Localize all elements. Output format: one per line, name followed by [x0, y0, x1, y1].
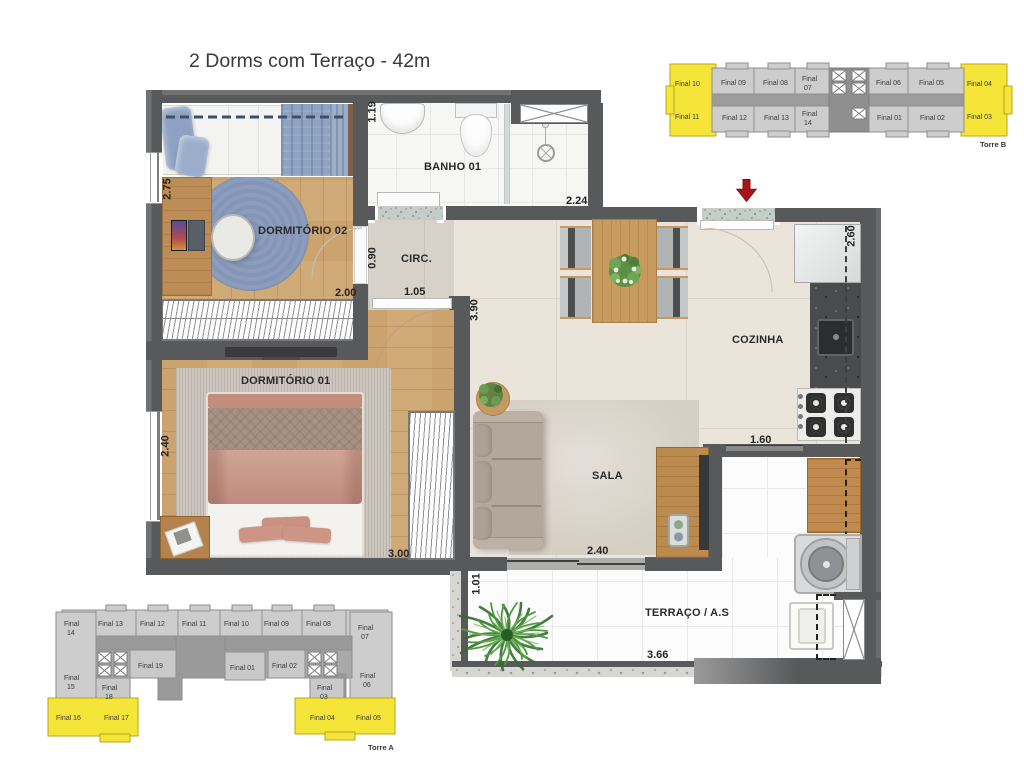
- svg-text:Final 08: Final 08: [763, 80, 788, 87]
- svg-text:Final: Final: [317, 685, 333, 692]
- svg-text:Final: Final: [360, 673, 376, 680]
- svg-text:Torre A: Torre A: [368, 743, 394, 752]
- svg-text:Final: Final: [64, 675, 80, 682]
- svg-text:Final 08: Final 08: [306, 621, 331, 628]
- svg-text:Final: Final: [802, 76, 818, 83]
- svg-text:Final 10: Final 10: [675, 81, 700, 88]
- svg-text:03: 03: [320, 694, 328, 701]
- svg-text:Final 13: Final 13: [98, 621, 123, 628]
- svg-text:Final 16: Final 16: [56, 715, 81, 722]
- svg-text:18: 18: [105, 694, 113, 701]
- svg-text:Final 17: Final 17: [104, 715, 129, 722]
- svg-text:Final 10: Final 10: [224, 621, 249, 628]
- svg-text:07: 07: [361, 634, 369, 641]
- svg-text:Final: Final: [358, 625, 374, 632]
- svg-text:06: 06: [363, 682, 371, 689]
- svg-text:Final 05: Final 05: [919, 80, 944, 87]
- svg-text:14: 14: [804, 120, 812, 127]
- svg-text:Final 02: Final 02: [920, 115, 945, 122]
- svg-text:Final 11: Final 11: [675, 114, 699, 121]
- svg-text:07: 07: [804, 85, 812, 92]
- svg-text:Final 02: Final 02: [272, 663, 297, 670]
- svg-text:Final 12: Final 12: [722, 115, 747, 122]
- svg-text:Final 03: Final 03: [967, 114, 992, 121]
- svg-text:Final: Final: [102, 685, 118, 692]
- svg-text:14: 14: [67, 630, 75, 637]
- svg-text:Final 09: Final 09: [721, 80, 746, 87]
- svg-text:Final 01: Final 01: [877, 115, 902, 122]
- svg-text:15: 15: [67, 684, 75, 691]
- svg-text:Final: Final: [802, 111, 818, 118]
- svg-text:Final 06: Final 06: [876, 80, 901, 87]
- svg-text:Final 09: Final 09: [264, 621, 289, 628]
- svg-text:Final 04: Final 04: [967, 81, 992, 88]
- svg-text:Final: Final: [64, 621, 80, 628]
- svg-text:Final 11: Final 11: [182, 621, 206, 628]
- svg-text:Torre B: Torre B: [980, 140, 1007, 149]
- svg-text:Final 04: Final 04: [310, 715, 335, 722]
- svg-text:Final 19: Final 19: [138, 663, 163, 670]
- svg-text:Final 05: Final 05: [356, 715, 381, 722]
- svg-text:Final 01: Final 01: [230, 665, 255, 672]
- svg-text:Final 13: Final 13: [764, 115, 789, 122]
- svg-text:Final 12: Final 12: [140, 621, 165, 628]
